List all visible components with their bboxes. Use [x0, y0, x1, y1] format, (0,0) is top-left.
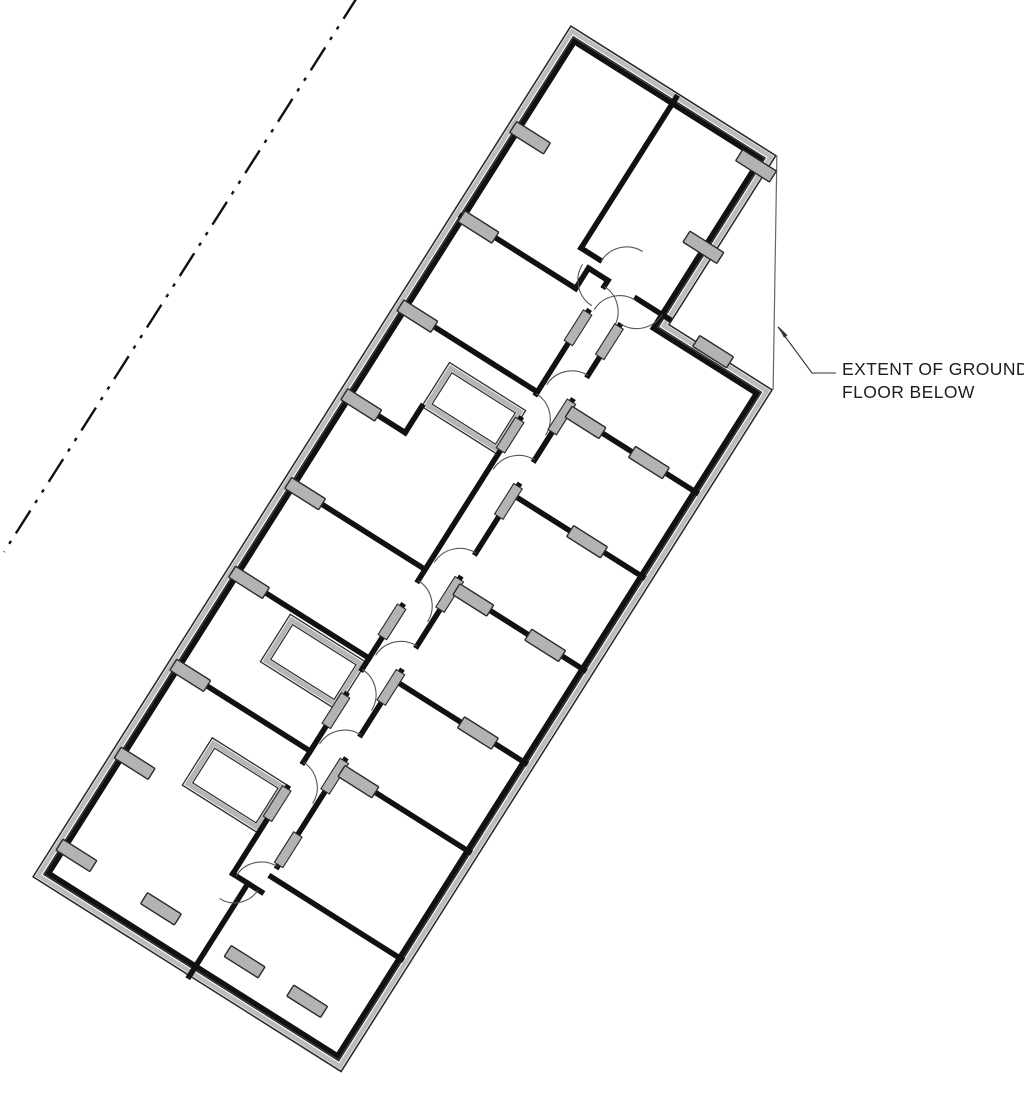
floor-plan-page: EXTENT OF GROUND FLOOR BELOW [0, 0, 1024, 1099]
leader-arrowhead [778, 326, 788, 338]
floor-plan-svg [0, 0, 1024, 1099]
extent-annotation: EXTENT OF GROUND FLOOR BELOW [842, 358, 1024, 404]
building-plan [33, 25, 880, 1072]
extent-annotation-line1: EXTENT OF GROUND [842, 358, 1024, 381]
leader-line [778, 327, 836, 373]
extent-annotation-line2: FLOOR BELOW [842, 381, 1024, 404]
